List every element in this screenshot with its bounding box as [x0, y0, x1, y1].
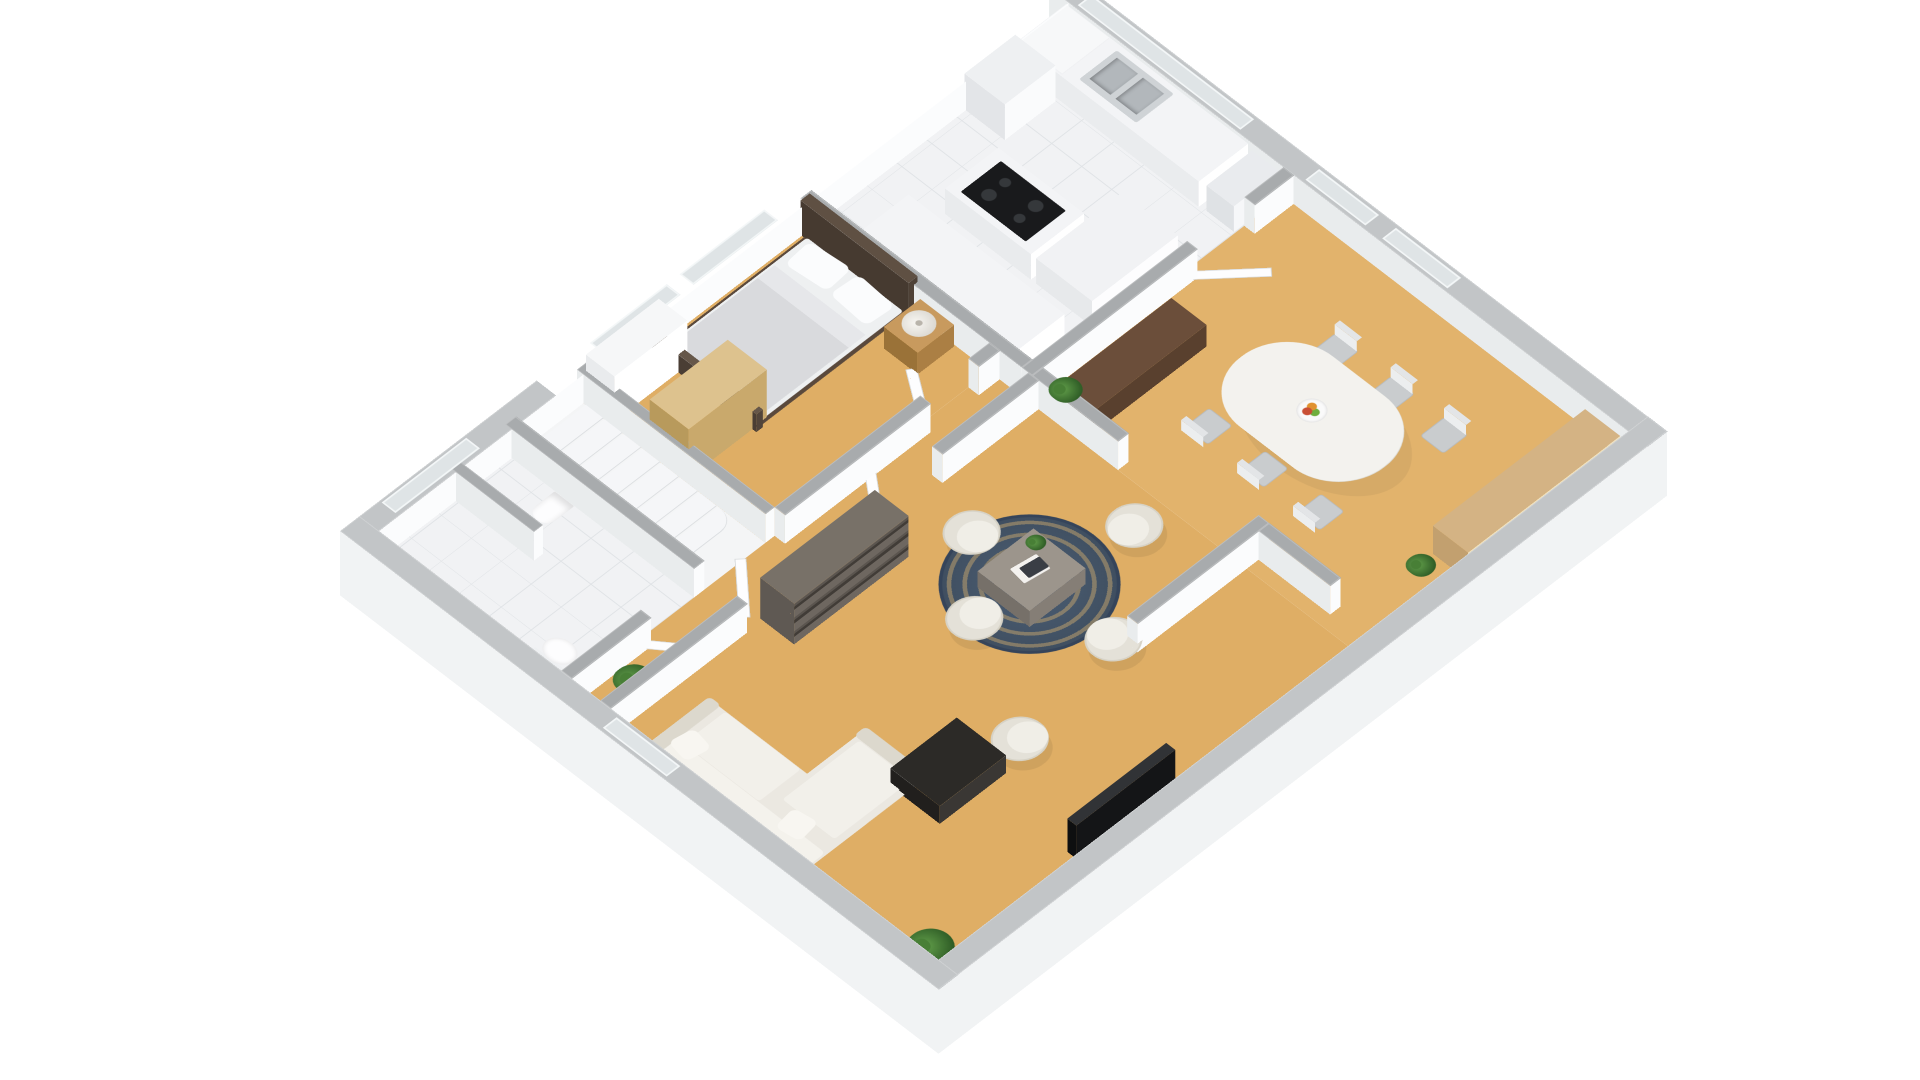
apartment-3d-scene — [340, 2, 1667, 1019]
floor-plan-render — [0, 0, 1920, 1080]
